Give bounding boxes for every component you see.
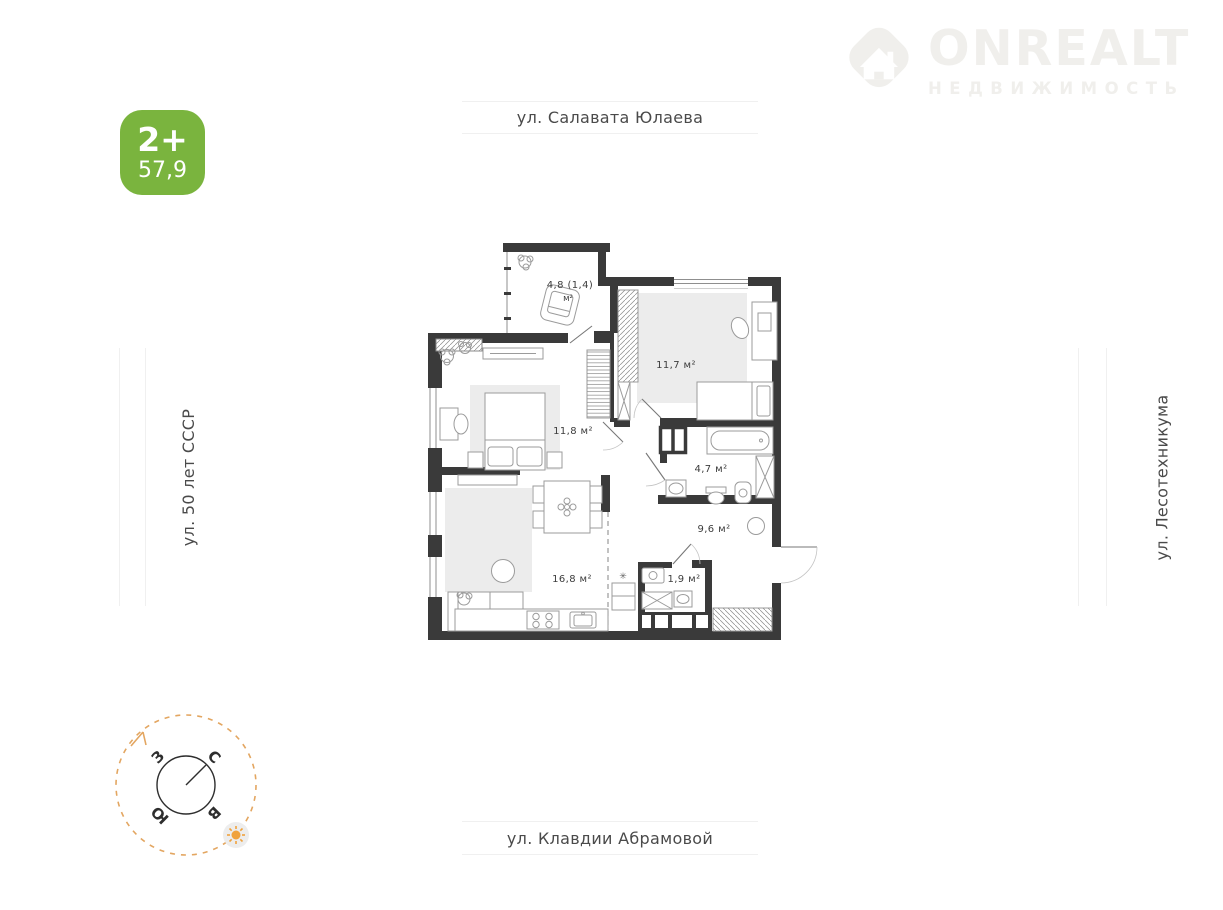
tv-stand (458, 475, 517, 485)
badge-rooms-count: 2+ (137, 122, 188, 158)
room-area-label-storage: 1,9 м² (667, 574, 700, 585)
coffee-table (492, 560, 515, 583)
nightstand (547, 452, 562, 468)
chair (590, 511, 602, 528)
chair (590, 486, 602, 503)
washing-machine (642, 568, 664, 583)
room-area-label-living-kitchen: 16,8 м² (552, 574, 592, 585)
rug-living (445, 488, 532, 592)
chair (533, 486, 545, 503)
street-label-top: ул. Салавата Юлаева (462, 101, 758, 134)
floor-plan: ✳ 4,8 (1,4) м² 11,7 м² 11,8 м² 4,7 м² 9,… (420, 235, 820, 645)
plant-icon (518, 255, 533, 270)
dining-table (544, 481, 590, 533)
washing-machine (735, 482, 751, 503)
onrealt-logo: ONREALT НЕДВИЖИМОСТЬ (838, 20, 1190, 112)
street-name: ул. 50 лет СССР (179, 408, 198, 545)
street-name: ул. Салавата Юлаева (517, 108, 703, 127)
pillow (757, 386, 770, 416)
street-name: ул. Клавдии Абрамовой (507, 829, 713, 848)
bedroom-master-furniture (439, 342, 562, 471)
street-name: ул. Лесотехникума (1152, 394, 1171, 560)
logo-house-icon (838, 20, 918, 112)
logo-title: ONREALT (928, 20, 1190, 78)
street-label-left: ул. 50 лет СССР (119, 348, 146, 606)
room-area-label-bedroom-small: 11,7 м² (656, 360, 696, 371)
badge-total-area: 57,9 (138, 158, 187, 184)
nightstand (468, 452, 483, 468)
pillow (488, 447, 513, 466)
street-label-bottom: ул. Клавдии Абрамовой (462, 821, 758, 855)
chair (454, 414, 468, 434)
utility-point-icon: ✳ (619, 572, 627, 582)
room-area-label-hallway: 9,6 м² (697, 524, 730, 535)
pillow (517, 447, 542, 466)
room-area-unit-loggia: м² (563, 294, 573, 304)
logo-subtitle: НЕДВИЖИМОСТЬ (928, 79, 1190, 98)
room-area-label-bedroom-master: 11,8 м² (553, 426, 593, 437)
floor-plan-page: ONREALT НЕДВИЖИМОСТЬ 2+ 57,9 ул. Салават… (0, 0, 1223, 910)
mirror (748, 518, 765, 535)
compass: С З Ю В (106, 705, 266, 865)
street-label-right: ул. Лесотехникума (1078, 348, 1107, 606)
chair (533, 511, 545, 528)
room-area-label-loggia: 4,8 (1,4) (547, 280, 593, 291)
sun-icon (223, 822, 249, 848)
entrance-door-arc (781, 547, 817, 583)
apartment-badge: 2+ 57,9 (120, 110, 205, 195)
room-area-label-bathroom: 4,7 м² (694, 464, 727, 475)
